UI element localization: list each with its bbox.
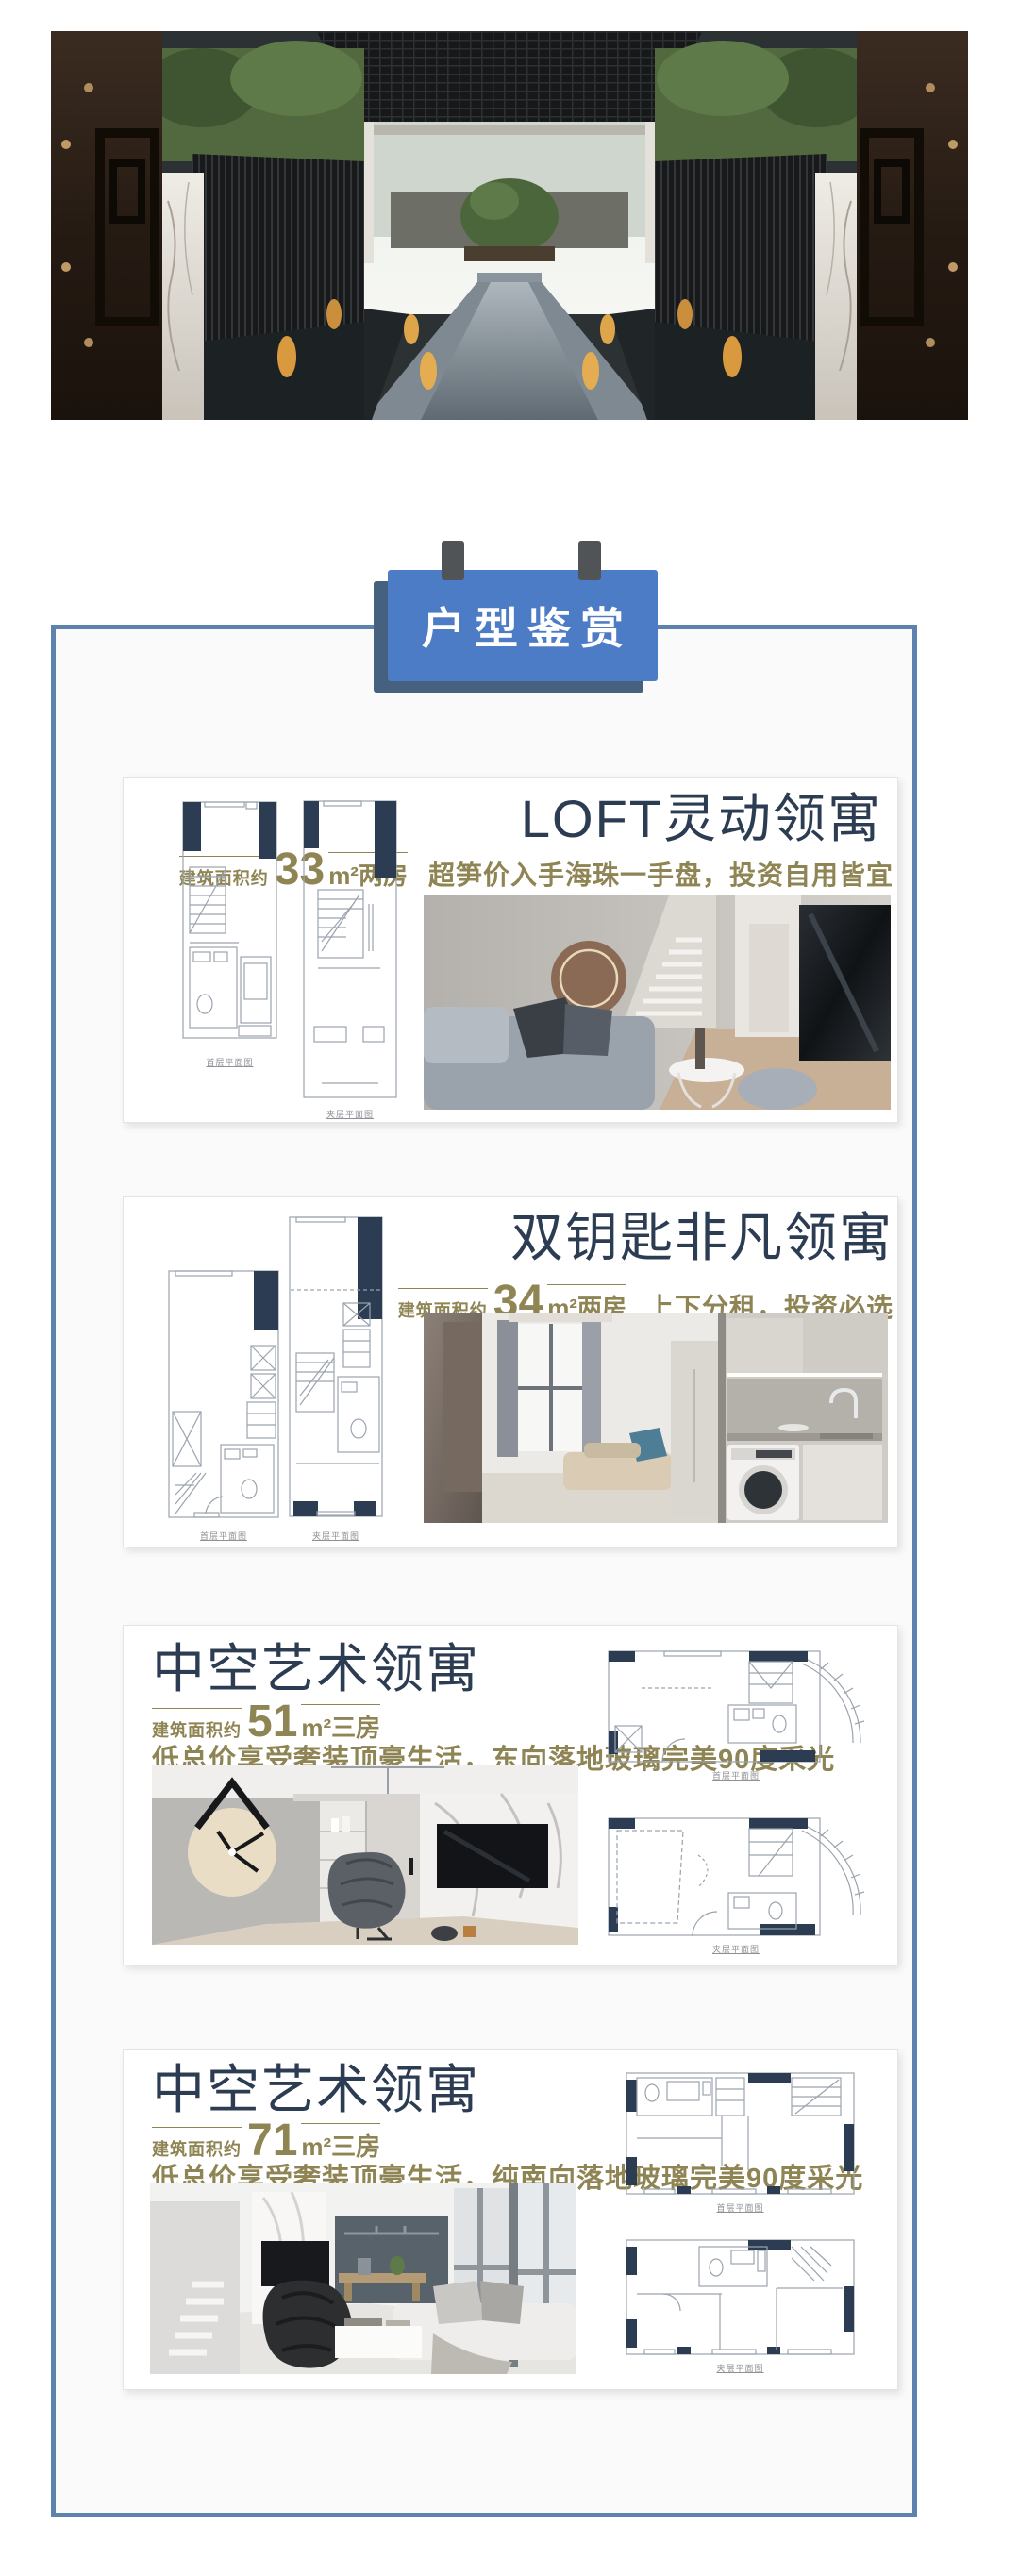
wall-block bbox=[677, 2186, 691, 2194]
bathroom bbox=[221, 1445, 274, 1513]
wall-block bbox=[626, 2080, 637, 2112]
section-banner: 户型鉴赏 bbox=[388, 570, 658, 681]
section-title: 户型鉴赏 bbox=[412, 594, 633, 657]
wall-block bbox=[767, 2347, 780, 2354]
stairs bbox=[190, 867, 226, 933]
tv-wall bbox=[424, 1313, 482, 1523]
ottoman bbox=[738, 1068, 817, 1110]
stairs bbox=[749, 1662, 793, 1703]
dining-area bbox=[335, 2216, 448, 2303]
balcony-arc bbox=[802, 1827, 864, 1915]
card-dualkey-34: 双钥匙非凡领寓 建筑面积约 34 m²两房 上下分租，投资必选 bbox=[123, 1196, 898, 1547]
promo-page: 户型鉴赏 LOFT灵动领寓 建筑面积约 33 m²两房 超笋价入手海珠一手盘，投… bbox=[0, 0, 1019, 2576]
wall-block bbox=[254, 1271, 278, 1330]
sink bbox=[820, 1433, 873, 1439]
floor-plan-upper bbox=[608, 1817, 864, 1936]
base-cabinet bbox=[803, 1445, 882, 1520]
card-title: 中空艺术领寓 bbox=[152, 1643, 480, 1696]
interior-photo-loft bbox=[424, 895, 891, 1110]
card-title: 双钥匙非凡领寓 bbox=[510, 1212, 894, 1264]
wall-block bbox=[760, 1924, 815, 1935]
bathroom bbox=[728, 1705, 796, 1743]
kitchen bbox=[716, 2078, 744, 2116]
wall-block bbox=[259, 802, 276, 859]
bathroom bbox=[699, 2247, 767, 2286]
plate bbox=[778, 1424, 809, 1431]
wall-block bbox=[375, 801, 396, 878]
wall-block bbox=[749, 1651, 808, 1662]
dining-table bbox=[339, 2273, 426, 2283]
interior-photo-art51 bbox=[152, 1765, 578, 1945]
void-room bbox=[617, 1831, 683, 1923]
card-art-71: 中空艺术领寓 建筑面积约 71 m²三房 低总价享受奢装顶豪生活，纯南向落地玻璃… bbox=[123, 2049, 898, 2390]
stairs bbox=[175, 1473, 206, 1514]
plan-caption: 夹层平面图 bbox=[626, 2362, 855, 2374]
gate-left bbox=[51, 31, 364, 420]
card-art-51: 中空艺术领寓 建筑面积约 51 m²三房 低总价享受奢装顶豪生活，东向落地玻璃完… bbox=[123, 1625, 898, 1965]
plan-caption: 首层平面图 bbox=[168, 1530, 279, 1542]
floor-plan-lower bbox=[626, 2072, 855, 2195]
tv bbox=[261, 2241, 329, 2286]
stairs bbox=[318, 890, 363, 958]
wall-block bbox=[749, 1818, 808, 1829]
wall-block bbox=[626, 2247, 637, 2275]
stairs bbox=[792, 2247, 831, 2281]
stairs bbox=[792, 2078, 841, 2116]
floor-plan-lower bbox=[168, 1270, 279, 1518]
wall-block bbox=[844, 2124, 854, 2171]
floor-plan-upper bbox=[303, 800, 397, 1098]
bathroom bbox=[728, 1893, 796, 1929]
plant bbox=[390, 2256, 405, 2275]
wall-block bbox=[760, 1750, 815, 1762]
plan-caption: 夹层平面图 bbox=[608, 1943, 864, 1955]
window bbox=[497, 1313, 612, 1457]
floor-plan-lower bbox=[608, 1650, 864, 1763]
card-title: LOFT灵动领寓 bbox=[521, 793, 882, 845]
stairs bbox=[296, 1353, 334, 1412]
cabinet bbox=[615, 1726, 642, 1752]
kitchenette bbox=[718, 1313, 888, 1523]
plan-caption: 首层平面图 bbox=[626, 2201, 855, 2214]
stairs bbox=[749, 1829, 793, 1876]
floor-plan-lower bbox=[182, 801, 277, 1039]
wall-block bbox=[304, 801, 319, 848]
plan-caption: 首层平面图 bbox=[608, 1769, 864, 1781]
wall-block bbox=[844, 2286, 854, 2332]
card-tagline: 超笋价入手海珠一手盘，投资自用皆宜 bbox=[428, 855, 894, 893]
banner-pin-icon bbox=[578, 541, 601, 580]
wall-block bbox=[748, 2073, 791, 2083]
tv-panel bbox=[799, 905, 891, 1061]
wall-block bbox=[354, 1501, 376, 1516]
wall-block bbox=[183, 802, 201, 851]
bathroom bbox=[190, 947, 237, 1028]
stool bbox=[431, 1926, 458, 1941]
bathroom bbox=[338, 1377, 379, 1452]
floor-plan-upper bbox=[626, 2239, 855, 2355]
wall-block bbox=[626, 2319, 637, 2348]
entrance-courtyard-photo bbox=[51, 31, 968, 420]
backsplash bbox=[727, 1379, 882, 1433]
balcony-arc bbox=[802, 1660, 864, 1743]
area-spec: 建筑面积约 33 m²两房 超笋价入手海珠一手盘，投资自用皆宜 bbox=[179, 847, 894, 893]
hallway-door bbox=[749, 924, 789, 1032]
washing-machine bbox=[727, 1445, 799, 1520]
bathroom bbox=[637, 2078, 712, 2116]
wall-block bbox=[626, 2157, 637, 2185]
plan-caption: 夹层平面图 bbox=[289, 1530, 383, 1542]
mezzanine bbox=[152, 1765, 578, 1798]
plan-caption: 首层平面图 bbox=[182, 1056, 277, 1068]
appliances bbox=[247, 1346, 276, 1438]
card-loft-33: LOFT灵动领寓 建筑面积约 33 m²两房 超笋价入手海珠一手盘，投资自用皆宜… bbox=[123, 777, 898, 1123]
tv bbox=[437, 1824, 548, 1888]
banner-pin-icon bbox=[442, 541, 464, 580]
plan-caption: 夹层平面图 bbox=[303, 1108, 397, 1120]
floor-plan-upper bbox=[289, 1216, 383, 1517]
wall-block bbox=[677, 2347, 691, 2354]
wall-block bbox=[609, 1818, 635, 1829]
wall-block bbox=[767, 2186, 780, 2194]
coffee-table bbox=[335, 2318, 422, 2358]
wall-block bbox=[293, 1501, 318, 1516]
pergola-canopy bbox=[317, 31, 702, 122]
wall-block bbox=[748, 2240, 791, 2250]
interior-photo-art71 bbox=[150, 2183, 576, 2374]
card-title: 中空艺术领寓 bbox=[152, 2064, 480, 2116]
wardrobe bbox=[173, 1412, 201, 1466]
wall-block bbox=[609, 1651, 635, 1662]
gate-door bbox=[51, 31, 162, 420]
interior-photo-dualkey bbox=[424, 1313, 888, 1523]
